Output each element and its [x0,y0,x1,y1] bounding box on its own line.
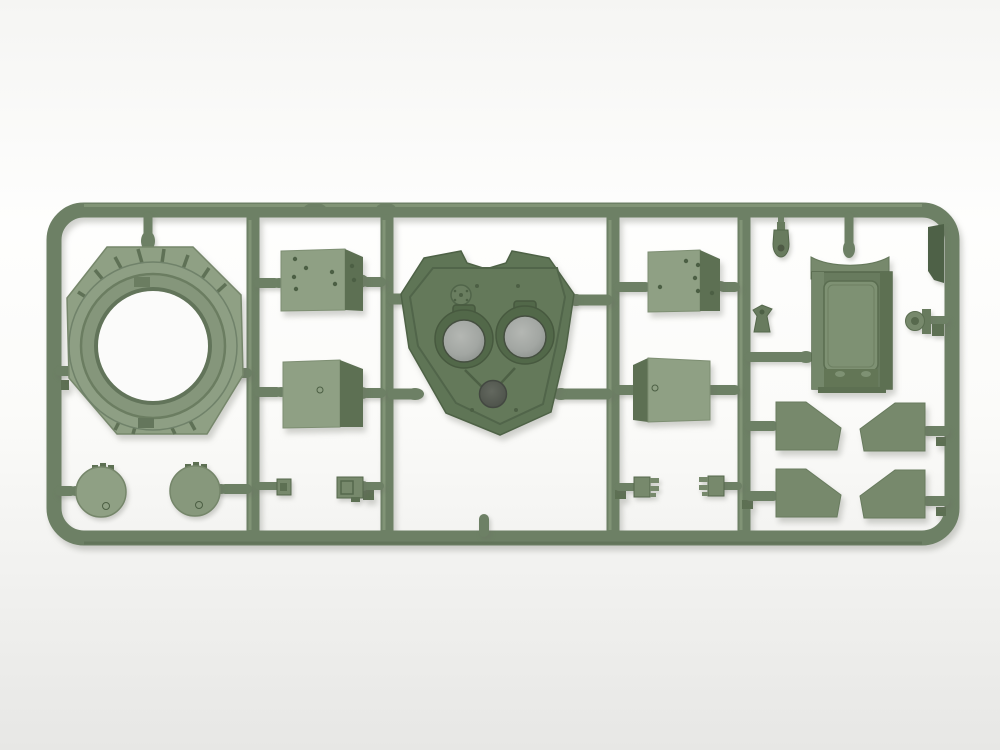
fender-plate-part-3 [776,469,841,517]
light-knob-part [773,222,789,257]
stowage-bin-part [811,257,892,393]
frame-tab [61,380,69,390]
frame-tab [936,437,946,446]
sprue-photo [0,0,1000,750]
vent-dome [451,285,471,305]
bin-lid [824,281,878,371]
fender-plate-part-2 [860,403,925,451]
sprue-illustration [0,0,1000,750]
valve-bracket-part [753,305,772,332]
small-bracket-part [277,479,291,495]
top-rail-bump [303,203,327,217]
rail-tab [363,490,374,500]
sprue-id-tab [928,224,944,283]
pistol-port-hole [480,381,507,408]
round-hatch-part-1 [76,463,126,517]
round-hatch-part-2 [170,462,220,516]
turret-roof-part [401,251,574,435]
bin-latch [861,371,871,377]
frame-tab [936,507,946,516]
bin-lower-band [824,369,878,389]
armor-panel-right-top [648,250,720,312]
ring-notch-bottom [138,418,154,428]
ring-opening [98,291,208,401]
fender-plate-part-4 [860,470,925,518]
bin-latch [835,371,845,377]
armor-panel-right-bottom [633,358,710,422]
rail-tab [615,490,626,499]
ring-notch-top [134,277,150,287]
small-box-part [337,477,363,502]
armor-panel-left-bottom [283,360,363,428]
bin-lip [818,387,886,393]
rail-tab [742,500,753,509]
turret-ring-part [67,247,243,434]
hinge-comb-part-1 [634,477,659,497]
armor-panel-left-top [281,249,363,311]
fender-plate-part-1 [776,402,841,450]
hinge-comb-part-2 [699,476,724,496]
